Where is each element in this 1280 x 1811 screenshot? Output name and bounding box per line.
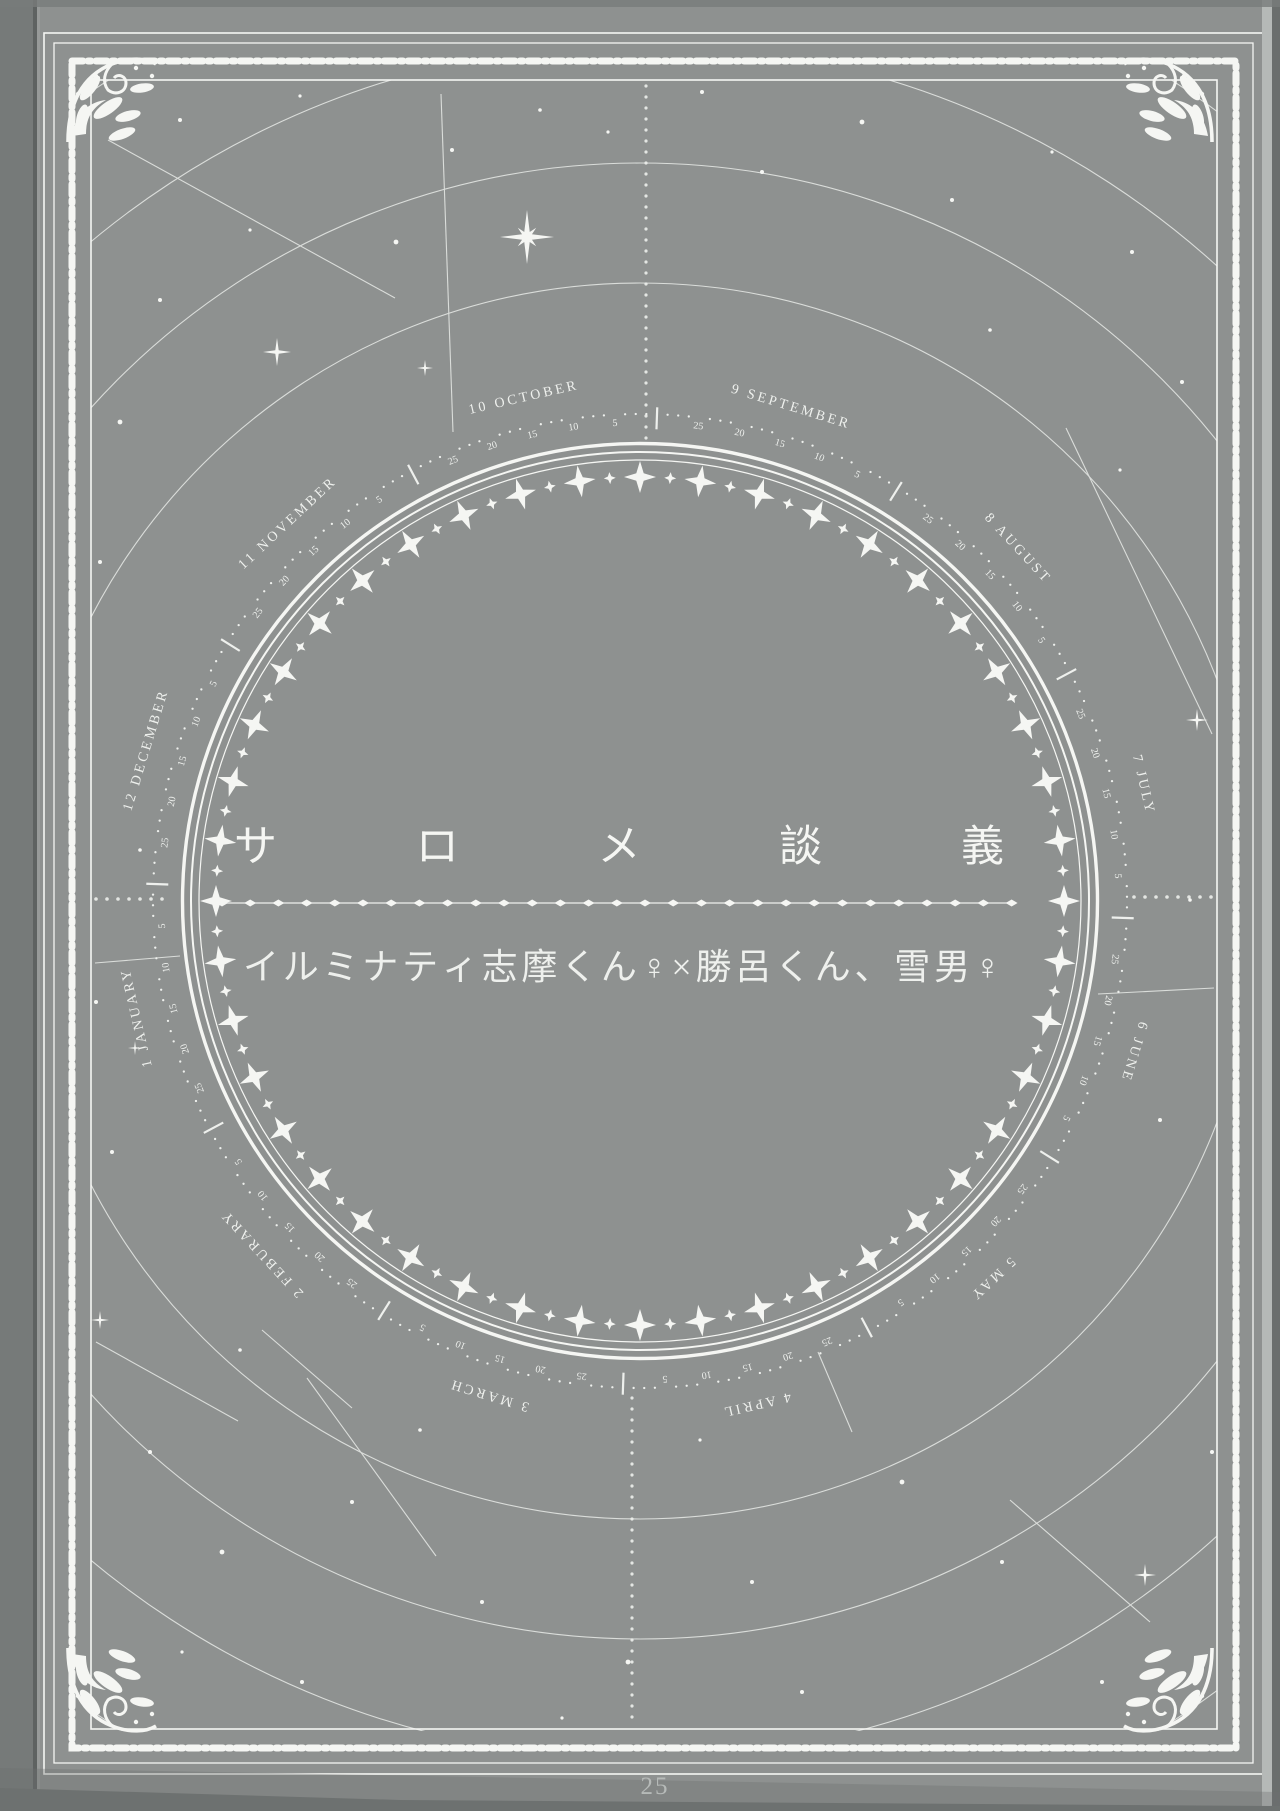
title-divider: [216, 900, 1018, 907]
day-tick-label: 10: [701, 1368, 712, 1380]
day-tick-label: 5: [157, 923, 168, 929]
day-tick-label: 10: [160, 962, 172, 973]
day-tick-label: 5: [1112, 873, 1123, 879]
circle-subtitle: イルミナティ志摩くん♀×勝呂くん、雪男♀: [243, 946, 1001, 988]
day-tick-label: 5: [612, 418, 618, 429]
day-tick-label: 10: [1107, 829, 1119, 840]
day-tick-label: 10: [568, 421, 579, 433]
day-tick-label: 25: [159, 837, 171, 848]
circle-title: サロメ談義: [234, 824, 1004, 872]
book-page: 1 JANUARY2520151052 FEBURARY2520151053 M…: [0, 0, 1280, 1811]
day-tick-label: 5: [662, 1373, 668, 1384]
page-number: 25: [30, 1773, 1280, 1801]
star-chart-plate: 1 JANUARY2520151052 FEBURARY2520151053 M…: [0, 0, 1280, 1811]
day-tick-label: 25: [693, 420, 704, 432]
day-tick-label: 25: [576, 1370, 587, 1382]
day-tick-label: 25: [1109, 954, 1121, 965]
